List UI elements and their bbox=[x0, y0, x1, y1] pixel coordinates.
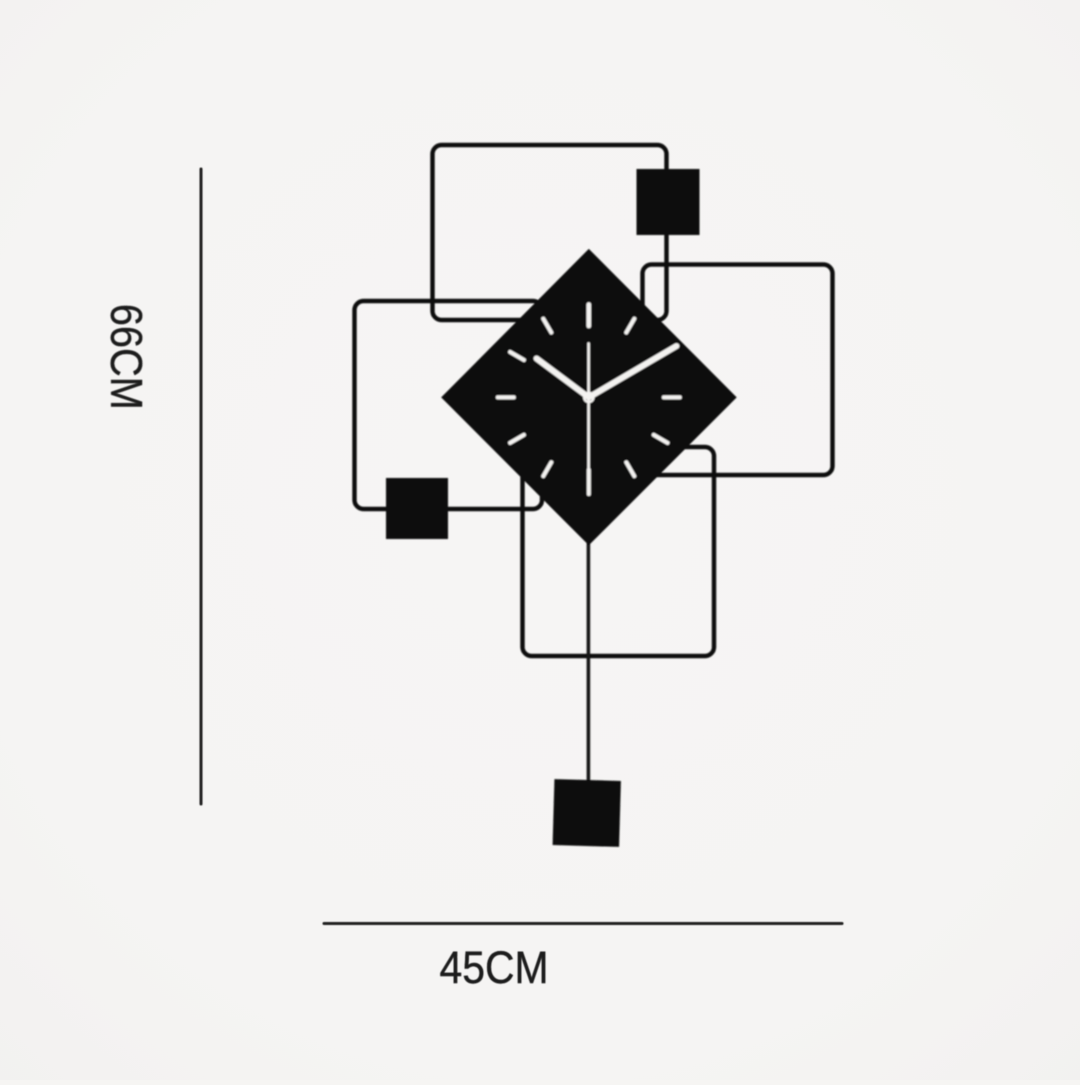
svg-text:45CM: 45CM bbox=[440, 942, 549, 993]
svg-text:66CM: 66CM bbox=[101, 304, 150, 410]
